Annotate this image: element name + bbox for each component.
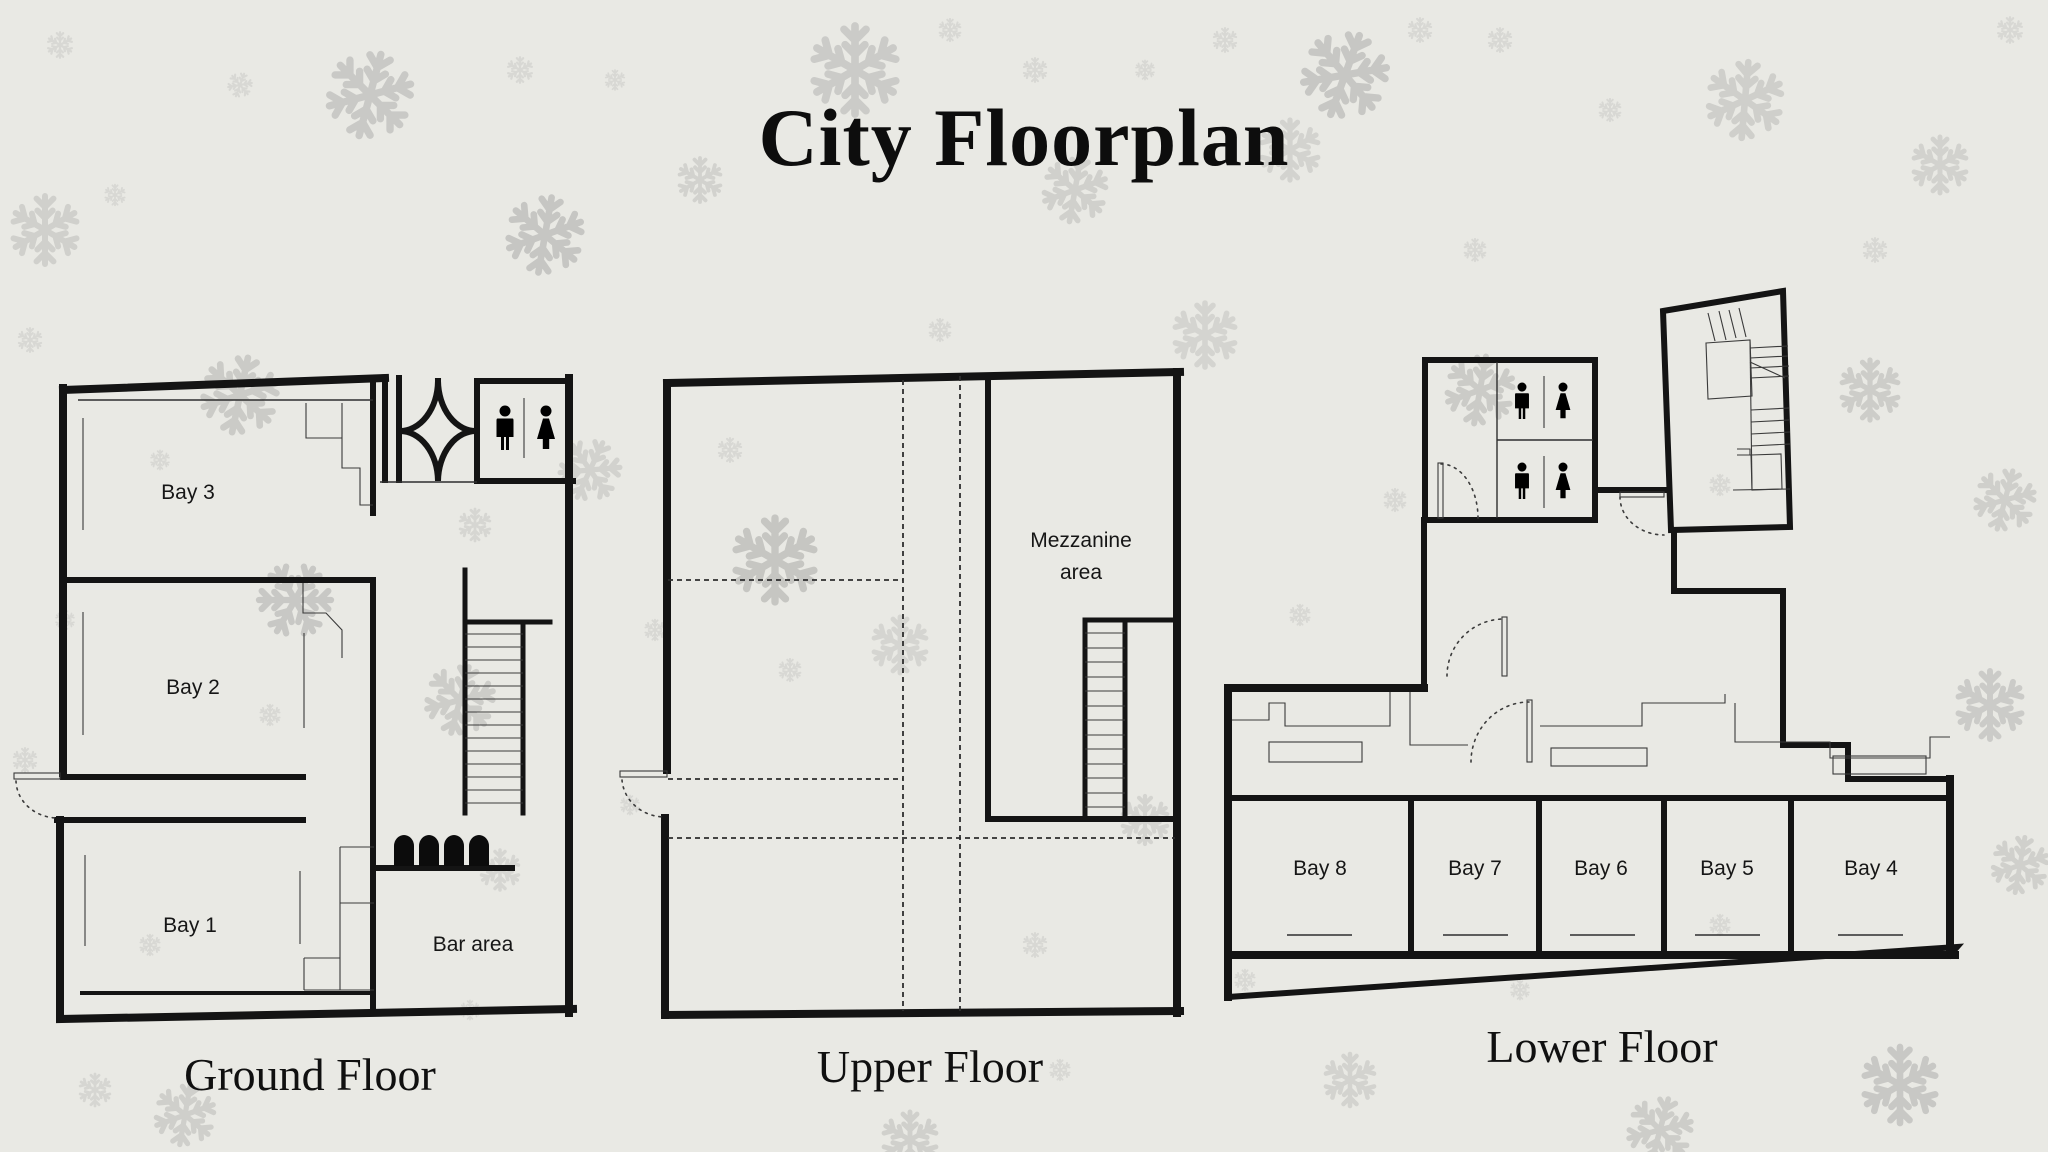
snowflake-icon xyxy=(1213,28,1237,52)
snowflake-icon xyxy=(225,70,256,101)
snowflake-icon xyxy=(319,44,421,147)
bar-stool-icon xyxy=(444,835,464,866)
snowflake-icon xyxy=(507,57,532,83)
bar-area-label: Bar area xyxy=(433,933,514,956)
snowflake-icon xyxy=(47,32,72,58)
upper-floor-plan: Mezzanine area Upper Floor xyxy=(620,372,1180,1092)
snowflake-icon xyxy=(620,795,639,814)
snowflake-icon xyxy=(733,518,816,602)
snowflake-icon xyxy=(13,748,37,772)
snowflake-icon xyxy=(605,70,625,90)
door-swing-icon xyxy=(1620,492,1664,535)
ground-floor-plan: Bay 3 Bay 2 Bay 1 Bar area Ground Floor xyxy=(14,378,573,1100)
snowflake-icon xyxy=(1023,58,1047,82)
snowflake-background xyxy=(11,17,2048,1152)
snowflake-icon xyxy=(1384,489,1406,511)
page-title: City Floorplan xyxy=(758,92,1289,183)
snowflake-icon xyxy=(872,617,927,673)
snowflake-icon xyxy=(1863,238,1887,262)
lower-corridor-details xyxy=(1232,692,1950,774)
snowflake-icon xyxy=(1969,463,2042,536)
snowflake-icon xyxy=(1292,21,1399,128)
bar-stools xyxy=(394,835,489,866)
revolving-door-icon xyxy=(400,381,477,481)
female-restroom-icon xyxy=(537,406,555,450)
bay5-label: Bay 5 xyxy=(1700,857,1754,880)
snowflake-icon xyxy=(1956,671,2023,739)
snowflake-icon xyxy=(246,551,344,649)
restroom-icons xyxy=(497,398,556,458)
snowflake-icon xyxy=(1599,99,1621,121)
female-restroom-icon xyxy=(1556,463,1571,499)
snowflake-icon xyxy=(1050,1060,1071,1081)
bar-stool-icon xyxy=(394,835,414,866)
door-swing-icon xyxy=(1438,463,1478,518)
snowflake-icon xyxy=(939,19,961,41)
snowflake-icon xyxy=(140,935,161,956)
snowflake-icon xyxy=(779,659,801,681)
snowflake-icon xyxy=(105,185,126,206)
bar-stool-icon xyxy=(469,835,489,866)
ground-floor-thin-details xyxy=(78,400,374,990)
upper-floor-dashed-lines xyxy=(668,376,1175,1011)
snowflake-icon xyxy=(79,1074,111,1106)
snowflake-icon xyxy=(1840,360,1899,420)
snowflake-icon xyxy=(1488,28,1512,52)
snowflake-icon xyxy=(550,430,629,510)
snowflake-icon xyxy=(1408,18,1432,42)
door-swing-icon xyxy=(1447,617,1507,676)
snowflake-icon xyxy=(1710,915,1731,936)
snowflake-icon xyxy=(1510,980,1529,999)
snowflake-icon xyxy=(1710,475,1731,496)
bay8-label: Bay 8 xyxy=(1293,857,1347,880)
snowflake-icon xyxy=(501,191,588,279)
bay2-label: Bay 2 xyxy=(166,676,220,699)
restroom-icons xyxy=(1515,376,1570,508)
mezzanine-label-line1: Mezzanine xyxy=(1030,529,1132,552)
female-restroom-icon xyxy=(1556,383,1571,419)
snowflake-icon xyxy=(1173,303,1236,367)
snowflake-icon xyxy=(419,658,502,741)
snowflake-icon xyxy=(459,509,491,541)
stairs-icon xyxy=(1706,308,1790,490)
snowflake-icon xyxy=(678,158,722,202)
mezzanine-label-line2: area xyxy=(1060,561,1102,584)
floorplan-canvas: City Floorplan xyxy=(0,0,2048,1152)
snowflake-icon xyxy=(1324,1054,1376,1106)
snowflake-icon xyxy=(260,705,281,726)
snowflake-icon xyxy=(1621,1091,1699,1152)
snowflake-icon xyxy=(718,438,742,462)
lower-floor-label: Lower Floor xyxy=(1486,1021,1717,1072)
snowflake-icon xyxy=(1235,970,1256,991)
door-swing-icon xyxy=(620,771,667,817)
bar-stool-icon xyxy=(419,835,439,866)
upper-floor-label: Upper Floor xyxy=(817,1041,1043,1092)
bay6-label: Bay 6 xyxy=(1574,857,1628,880)
snowflake-icon xyxy=(929,319,951,341)
snowflake-icon xyxy=(1704,59,1786,141)
door-swing-icon xyxy=(1471,700,1532,762)
bay3-label: Bay 3 xyxy=(161,481,215,504)
snowflake-icon xyxy=(1023,933,1047,957)
snowflake-icon xyxy=(18,328,42,352)
snowflake-icon xyxy=(1135,60,1154,79)
snowflake-icon xyxy=(1862,1047,1937,1123)
male-restroom-icon xyxy=(1515,383,1529,419)
snowflake-icon xyxy=(1290,605,1311,626)
snowflake-icon xyxy=(882,1112,937,1152)
male-restroom-icon xyxy=(497,406,514,451)
stairs-icon xyxy=(1085,620,1177,819)
bay1-label: Bay 1 xyxy=(163,914,217,937)
snowflake-icon xyxy=(645,620,666,641)
snowflake-icon xyxy=(195,350,284,440)
snowflake-icon xyxy=(1912,137,1967,193)
male-restroom-icon xyxy=(1515,463,1529,499)
snowflake-icon xyxy=(1464,239,1486,261)
door-swing-icon xyxy=(14,773,60,818)
snowflake-icon xyxy=(1997,17,2022,43)
upper-floor-walls xyxy=(665,372,1180,1015)
floorplan-page: City Floorplan xyxy=(0,0,2048,1152)
bay4-label: Bay 4 xyxy=(1844,857,1898,880)
ground-floor-label: Ground Floor xyxy=(184,1049,436,1100)
bay7-label: Bay 7 xyxy=(1448,857,1502,880)
snowflake-icon xyxy=(1988,833,2048,898)
snowflake-icon xyxy=(150,450,169,469)
snowflake-icon xyxy=(11,196,78,264)
